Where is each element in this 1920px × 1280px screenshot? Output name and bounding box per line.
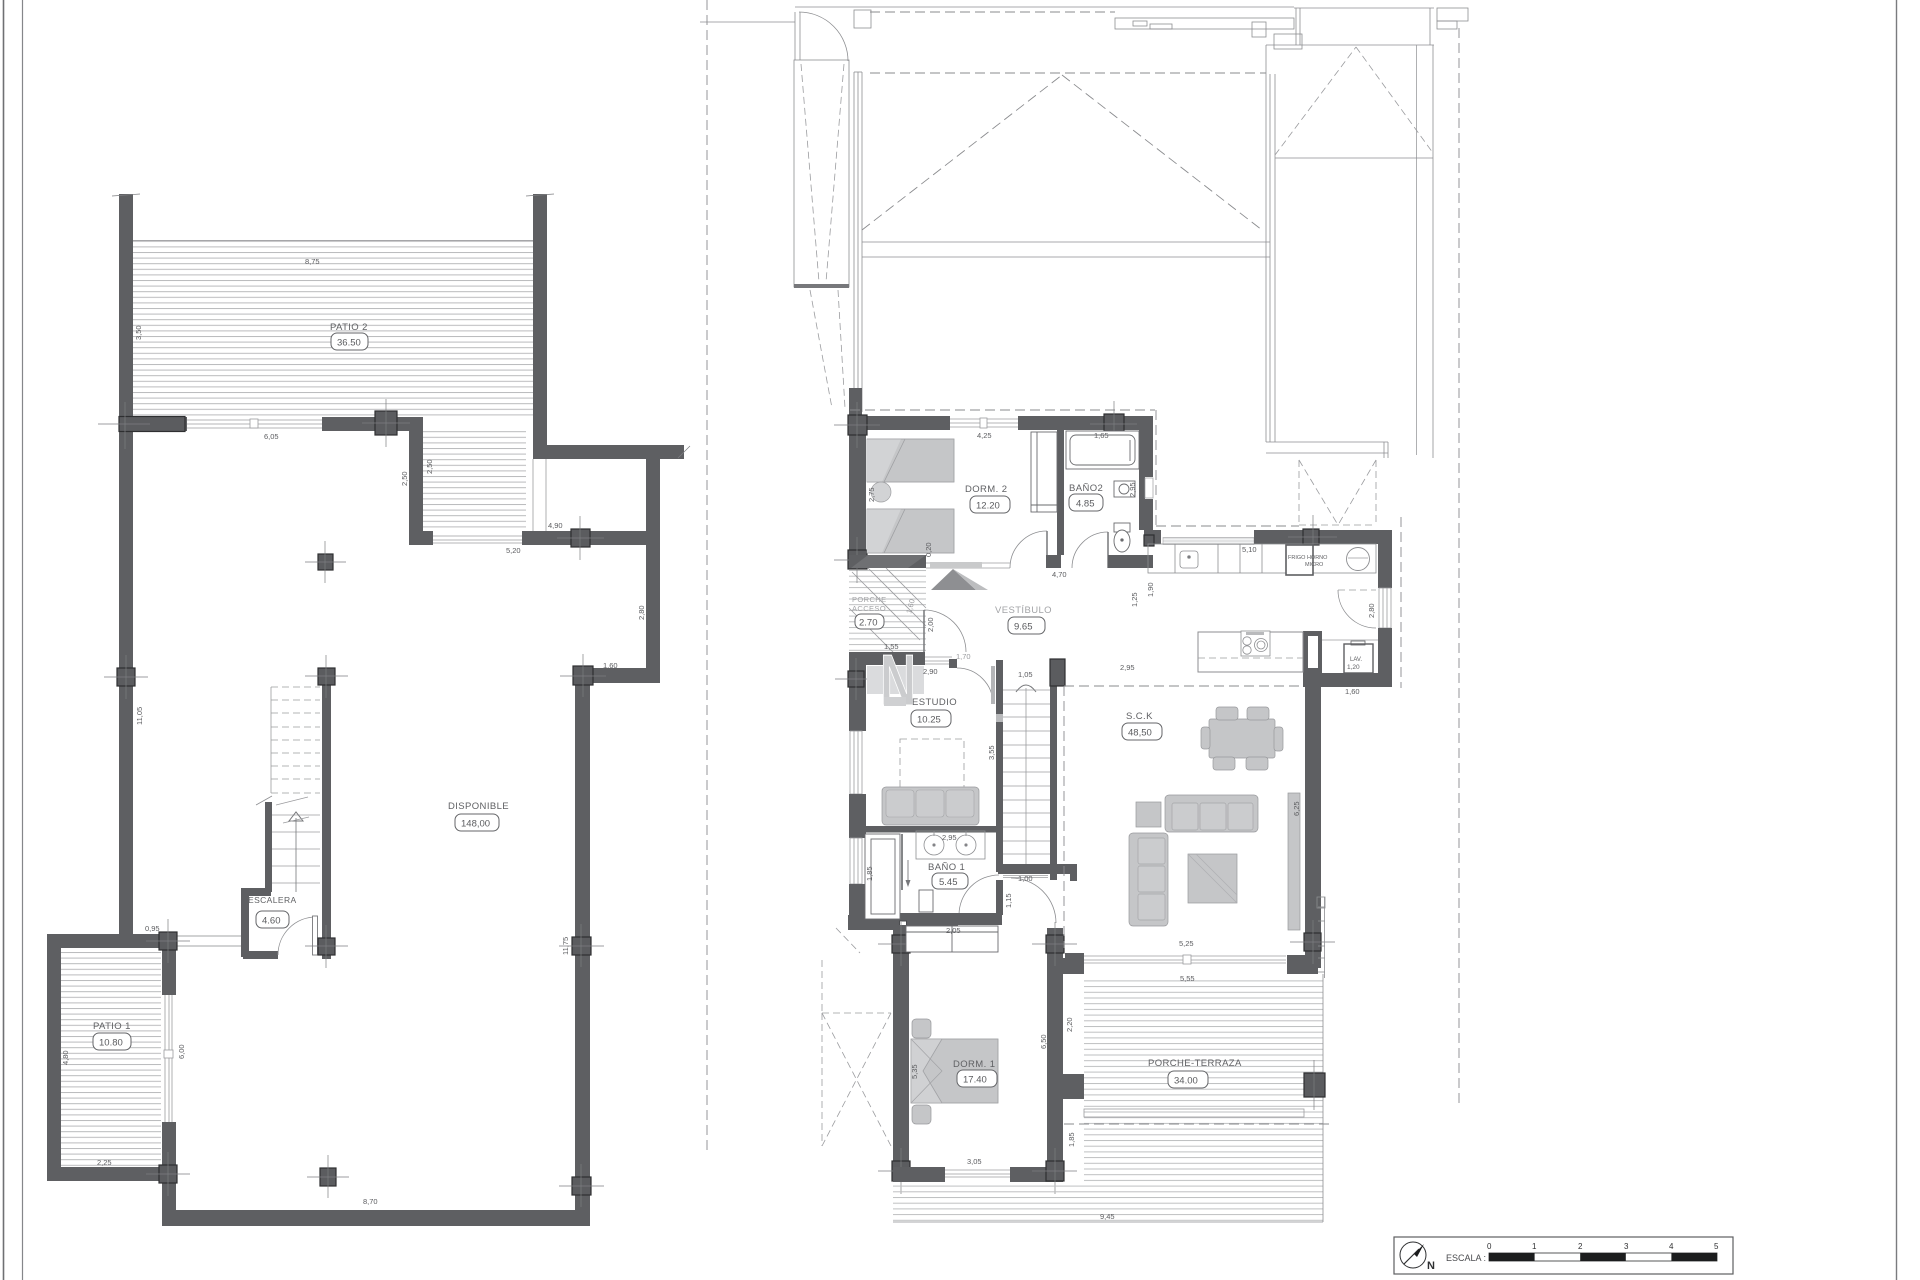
svg-text:1,70: 1,70 <box>956 652 971 661</box>
svg-text:1,60: 1,60 <box>1345 687 1360 696</box>
svg-text:3: 3 <box>1624 1242 1629 1251</box>
svg-text:2,50: 2,50 <box>400 471 409 486</box>
svg-text:4.85: 4.85 <box>1076 499 1095 510</box>
svg-text:2,50: 2,50 <box>425 459 434 474</box>
svg-text:VESTÍBULO: VESTÍBULO <box>995 605 1052 616</box>
svg-text:5.45: 5.45 <box>939 877 958 888</box>
svg-text:3,50: 3,50 <box>134 325 143 340</box>
svg-text:S.C.K: S.C.K <box>1126 711 1153 722</box>
svg-text:PATIO 1: PATIO 1 <box>93 1021 131 1032</box>
svg-text:6,50: 6,50 <box>1039 1034 1048 1049</box>
svg-text:1,00: 1,00 <box>1018 874 1033 883</box>
svg-text:PORCHE-TERRAZA: PORCHE-TERRAZA <box>1148 1058 1242 1069</box>
svg-text:5: 5 <box>1714 1242 1719 1251</box>
svg-text:9.65: 9.65 <box>1014 622 1033 633</box>
svg-text:ACCESO: ACCESO <box>852 604 886 613</box>
svg-text:6,00: 6,00 <box>177 1044 186 1059</box>
svg-text:5,55: 5,55 <box>1180 974 1195 983</box>
svg-text:DORM. 1: DORM. 1 <box>953 1059 995 1070</box>
svg-text:2,80: 2,80 <box>1367 603 1376 618</box>
svg-text:4: 4 <box>1669 1242 1674 1251</box>
svg-text:5,20: 5,20 <box>506 546 521 555</box>
svg-text:2,05: 2,05 <box>946 926 961 935</box>
svg-text:1: 1 <box>1532 1242 1537 1251</box>
svg-text:PATIO 2: PATIO 2 <box>330 322 368 333</box>
svg-text:1,05: 1,05 <box>1018 670 1033 679</box>
svg-text:8,70: 8,70 <box>363 1197 378 1206</box>
svg-text:10.25: 10.25 <box>917 715 941 726</box>
svg-text:2,00: 2,00 <box>926 617 935 632</box>
svg-text:4,80: 4,80 <box>61 1050 70 1065</box>
svg-text:0,20: 0,20 <box>924 542 933 557</box>
svg-text:1,85: 1,85 <box>1067 1132 1076 1147</box>
svg-text:ESTUDIO: ESTUDIO <box>912 697 957 708</box>
svg-text:4,90: 4,90 <box>548 521 563 530</box>
svg-text:2,90: 2,90 <box>923 667 938 676</box>
svg-text:1,85: 1,85 <box>865 866 874 881</box>
svg-text:4.60: 4.60 <box>262 916 281 927</box>
svg-text:ESCALERA: ESCALERA <box>248 895 297 905</box>
svg-text:34.00: 34.00 <box>1174 1076 1198 1087</box>
svg-text:FRIGO HORNO: FRIGO HORNO <box>1288 555 1328 561</box>
svg-text:2,95: 2,95 <box>1128 482 1137 497</box>
svg-text:4,25: 4,25 <box>977 431 992 440</box>
svg-text:9,45: 9,45 <box>1100 1212 1115 1221</box>
svg-text:12.20: 12.20 <box>976 501 1000 512</box>
svg-text:2,80: 2,80 <box>637 605 646 620</box>
svg-text:10.80: 10.80 <box>99 1038 123 1049</box>
svg-text:2,25: 2,25 <box>97 1158 112 1167</box>
svg-text:6,25: 6,25 <box>1292 801 1301 816</box>
svg-text:2.70: 2.70 <box>859 618 878 629</box>
svg-text:2,75: 2,75 <box>867 487 876 502</box>
svg-text:3,55: 3,55 <box>987 745 996 760</box>
svg-text:1,20: 1,20 <box>1347 664 1360 671</box>
svg-text:MICRO: MICRO <box>1305 562 1324 568</box>
svg-text:1,55: 1,55 <box>884 642 899 651</box>
svg-text:5,25: 5,25 <box>1179 939 1194 948</box>
svg-text:2,20: 2,20 <box>1065 1017 1074 1032</box>
svg-text:1,65: 1,65 <box>1094 431 1109 440</box>
svg-text:36.50: 36.50 <box>337 338 361 349</box>
svg-text:DISPONIBLE: DISPONIBLE <box>448 801 509 812</box>
svg-text:11,05: 11,05 <box>135 707 144 725</box>
svg-text:3,05: 3,05 <box>967 1157 982 1166</box>
svg-text:1,60: 1,60 <box>603 661 618 670</box>
svg-text:5,35: 5,35 <box>910 1064 919 1079</box>
svg-text:PORCHE: PORCHE <box>852 595 887 604</box>
svg-text:BAÑO 1: BAÑO 1 <box>928 862 965 873</box>
svg-text:48,50: 48,50 <box>1128 728 1152 739</box>
svg-text:1,90: 1,90 <box>1146 582 1155 597</box>
svg-text:8,75: 8,75 <box>305 257 320 266</box>
svg-text:2: 2 <box>1578 1242 1583 1251</box>
svg-text:1,25: 1,25 <box>1130 592 1139 607</box>
svg-text:N: N <box>880 641 916 721</box>
svg-text:0: 0 <box>1487 1242 1492 1251</box>
svg-text:1,15: 1,15 <box>1004 893 1013 908</box>
svg-text:N: N <box>1427 1260 1435 1272</box>
svg-text:BAÑO2: BAÑO2 <box>1069 483 1103 494</box>
svg-text:0,95: 0,95 <box>145 924 160 933</box>
svg-text:LAV.: LAV. <box>1350 657 1362 663</box>
svg-text:2,95: 2,95 <box>1120 663 1135 672</box>
svg-text:5,10: 5,10 <box>1242 545 1257 554</box>
svg-text:17.40: 17.40 <box>963 1075 987 1086</box>
svg-text:2,95: 2,95 <box>942 833 957 842</box>
svg-text:DORM. 2: DORM. 2 <box>965 484 1007 495</box>
svg-text:6,05: 6,05 <box>264 432 279 441</box>
svg-text:ESCALA :: ESCALA : <box>1446 1253 1486 1263</box>
svg-text:11,75: 11,75 <box>561 937 570 955</box>
svg-text:4,70: 4,70 <box>1052 570 1067 579</box>
svg-text:148,00: 148,00 <box>461 819 490 830</box>
